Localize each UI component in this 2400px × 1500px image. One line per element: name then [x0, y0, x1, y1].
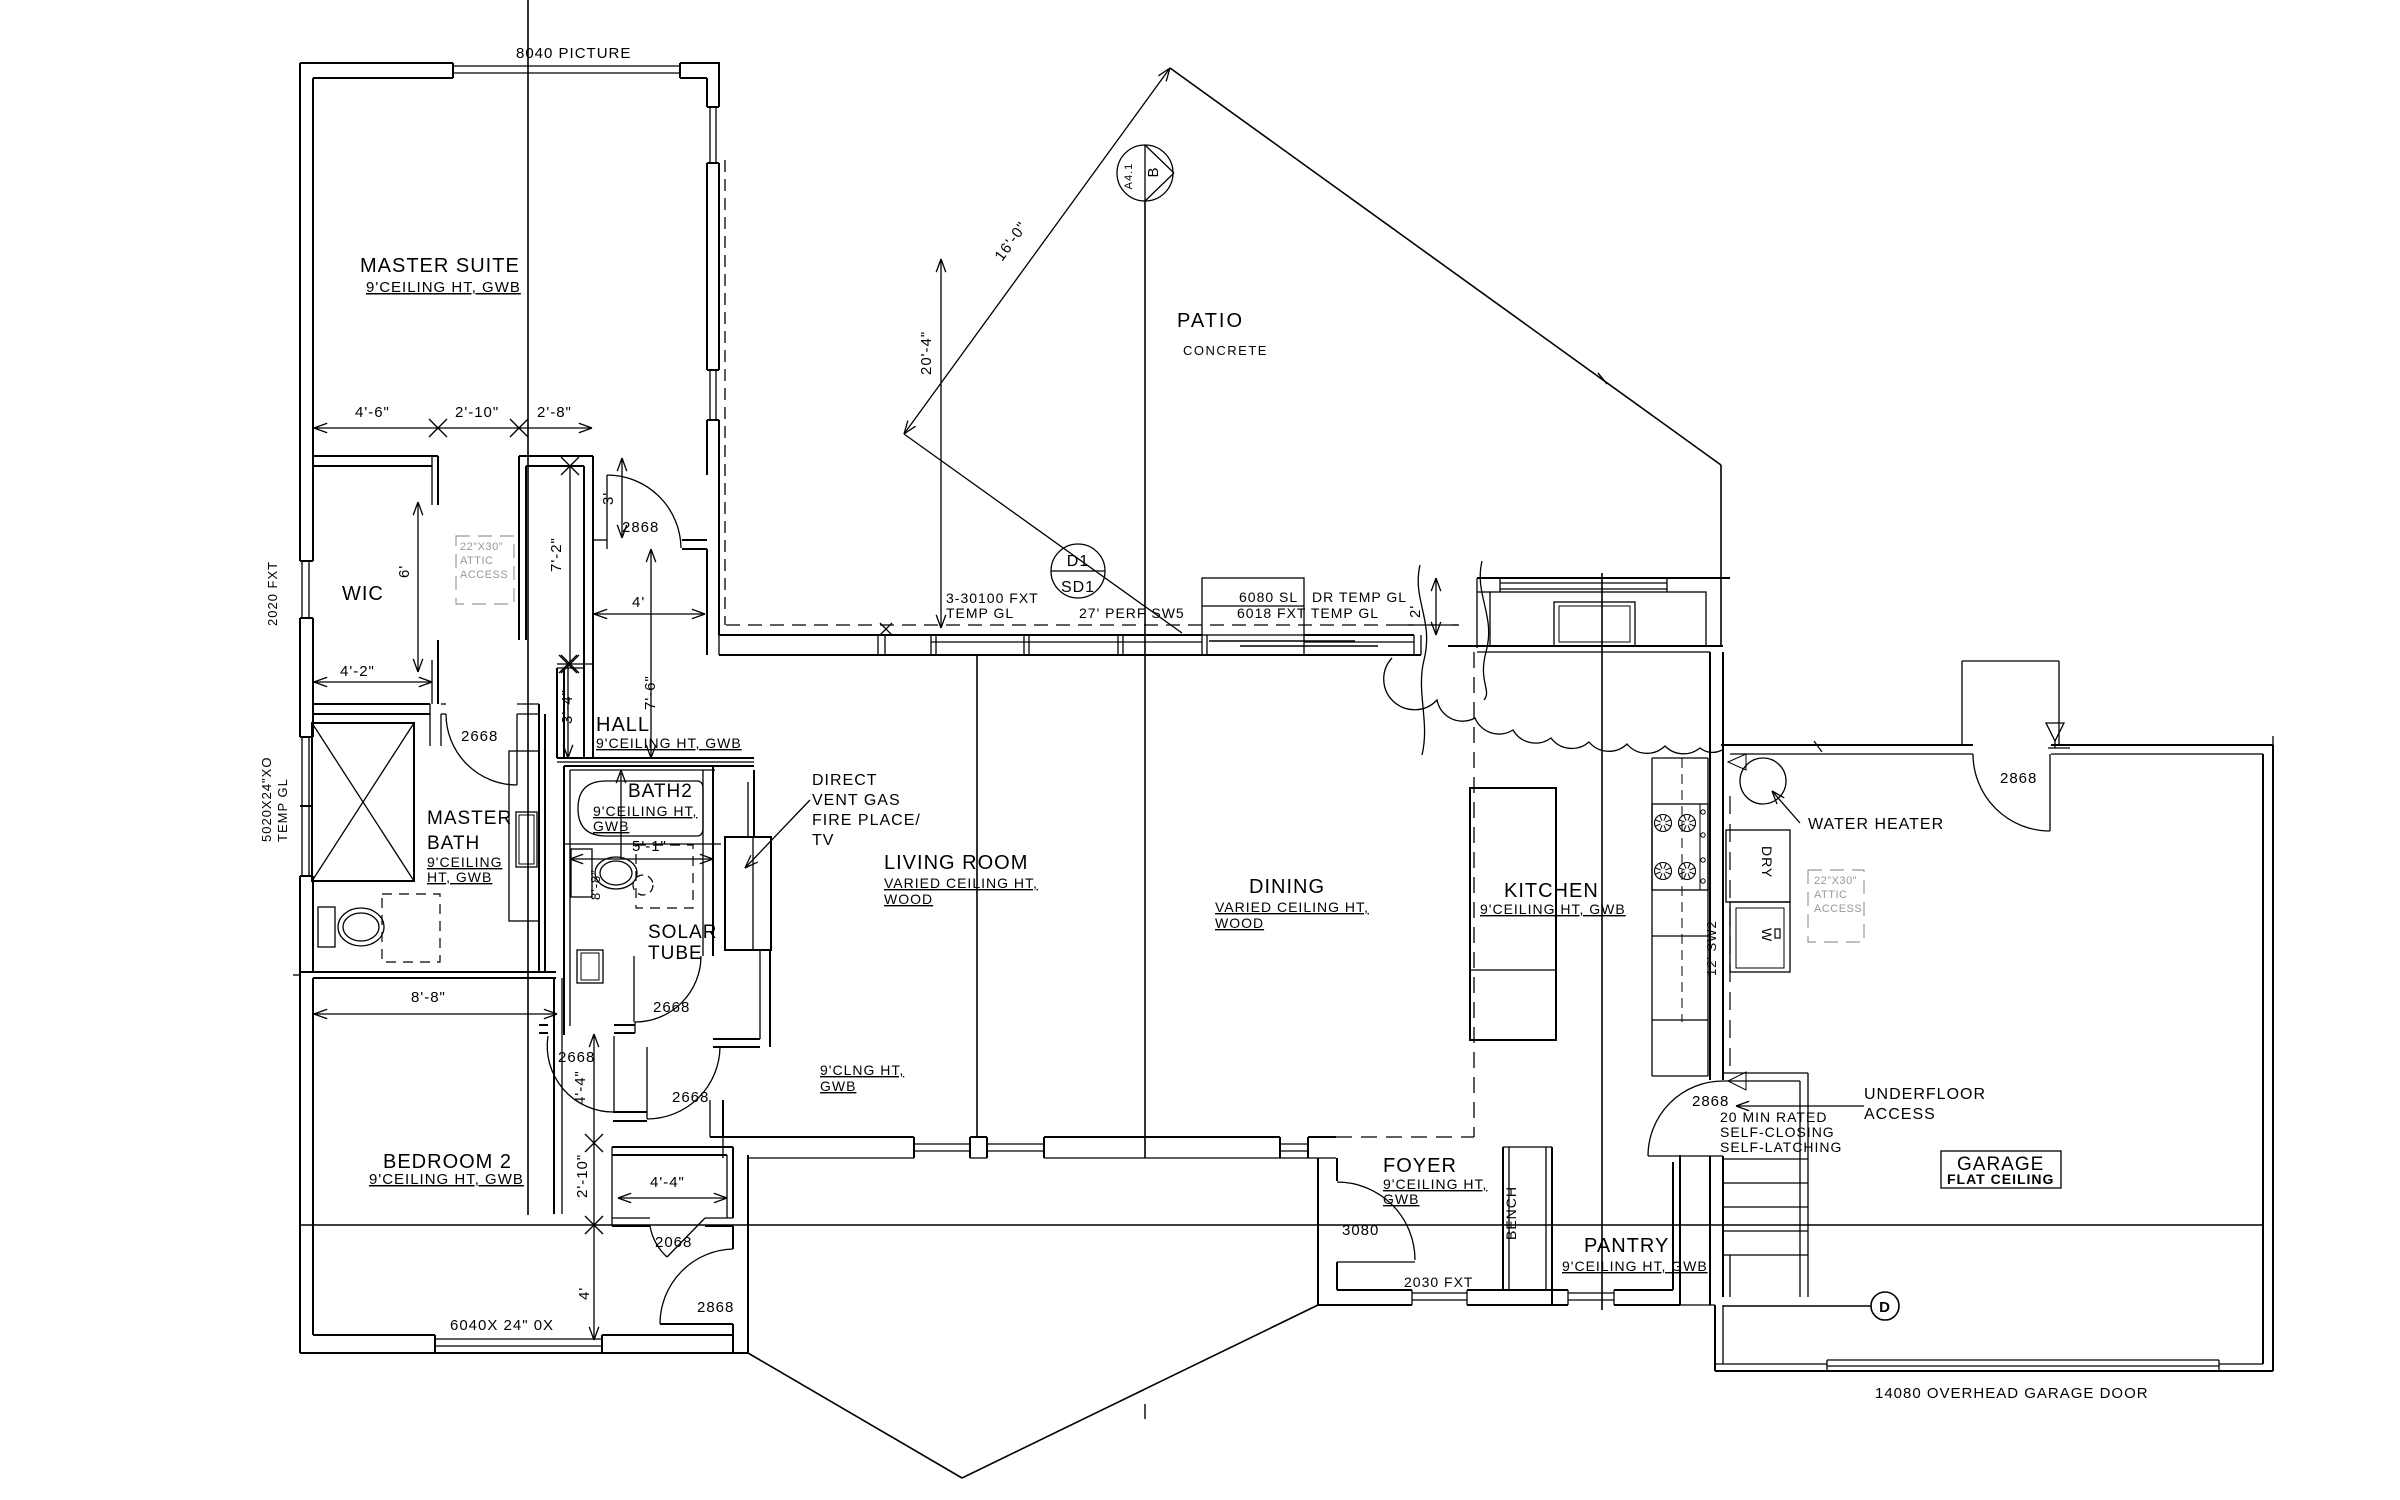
svg-text:4'-4": 4'-4" — [572, 1070, 589, 1105]
svg-text:27' PERF SW5: 27' PERF SW5 — [1079, 605, 1185, 621]
svg-text:GWB: GWB — [820, 1078, 856, 1094]
svg-text:ACCESS: ACCESS — [1814, 903, 1862, 915]
svg-text:GWB: GWB — [1383, 1191, 1419, 1207]
svg-text:9'CEILING: 9'CEILING — [427, 854, 502, 870]
svg-text:WOOD: WOOD — [1215, 915, 1264, 931]
svg-text:ATTIC: ATTIC — [460, 555, 493, 567]
svg-text:WOOD: WOOD — [884, 891, 933, 907]
svg-text:6': 6' — [396, 565, 413, 578]
svg-text:FOYER: FOYER — [1383, 1155, 1457, 1177]
svg-text:2068: 2068 — [655, 1234, 692, 1251]
svg-text:WATER HEATER: WATER HEATER — [1808, 816, 1944, 833]
svg-text:4': 4' — [632, 594, 645, 611]
svg-text:GWB: GWB — [593, 818, 629, 834]
svg-text:2668: 2668 — [672, 1089, 709, 1106]
svg-text:8'-8": 8'-8" — [588, 869, 603, 900]
svg-text:9'CEILING HT, GWB: 9'CEILING HT, GWB — [366, 279, 521, 296]
svg-text:DRY: DRY — [1759, 846, 1775, 878]
svg-text:SELF-LATCHING: SELF-LATCHING — [1720, 1139, 1842, 1155]
svg-text:9'CEILING HT, GWB: 9'CEILING HT, GWB — [596, 735, 742, 751]
svg-text:9'CLNG HT,: 9'CLNG HT, — [820, 1062, 904, 1078]
svg-text:VENT GAS: VENT GAS — [812, 792, 901, 809]
svg-text:W: W — [1759, 928, 1775, 942]
svg-text:D: D — [1879, 1299, 1891, 1316]
svg-text:A4.1: A4.1 — [1123, 163, 1135, 190]
svg-text:BATH: BATH — [427, 833, 480, 854]
svg-text:2868: 2868 — [1692, 1093, 1729, 1110]
svg-text:9'CEILING HT,: 9'CEILING HT, — [593, 803, 697, 819]
svg-text:2868: 2868 — [697, 1299, 734, 1316]
svg-text:4'-2": 4'-2" — [340, 663, 375, 680]
svg-text:4'-6": 4'-6" — [355, 404, 390, 421]
svg-text:9'CEILING HT, GWB: 9'CEILING HT, GWB — [1480, 901, 1626, 917]
svg-text:DIRECT: DIRECT — [812, 772, 878, 789]
svg-text:22"X30": 22"X30" — [1814, 875, 1857, 887]
svg-text:DR TEMP GL: DR TEMP GL — [1312, 589, 1407, 605]
svg-text:8040 PICTURE: 8040 PICTURE — [516, 45, 631, 62]
svg-text:2'-10": 2'-10" — [574, 1154, 591, 1198]
svg-text:TEMP GL: TEMP GL — [275, 778, 290, 842]
svg-text:SD1: SD1 — [1061, 579, 1095, 596]
svg-text:6018 FXT TEMP GL: 6018 FXT TEMP GL — [1237, 605, 1379, 621]
svg-text:SELF-CLOSING: SELF-CLOSING — [1720, 1124, 1835, 1140]
svg-text:BATH2: BATH2 — [628, 781, 693, 802]
svg-text:FIRE PLACE/: FIRE PLACE/ — [812, 812, 921, 829]
svg-text:BENCH: BENCH — [1503, 1186, 1519, 1240]
svg-text:TEMP GL: TEMP GL — [946, 605, 1014, 621]
svg-text:KITCHEN: KITCHEN — [1504, 880, 1599, 902]
svg-text:HT, GWB: HT, GWB — [427, 869, 492, 885]
svg-text:2868: 2868 — [2000, 770, 2037, 787]
svg-text:HALL: HALL — [596, 714, 650, 736]
svg-text:VARIED CEILING HT,: VARIED CEILING HT, — [884, 875, 1038, 891]
svg-text:22"X30": 22"X30" — [460, 541, 503, 553]
svg-text:B: B — [1145, 166, 1162, 177]
svg-text:SOLAR: SOLAR — [648, 922, 717, 943]
svg-text:7'-6": 7'-6" — [642, 675, 659, 710]
svg-text:MASTER: MASTER — [427, 808, 512, 829]
svg-text:VARIED CEILING HT,: VARIED CEILING HT, — [1215, 899, 1369, 915]
svg-text:5'-1": 5'-1" — [632, 838, 667, 855]
svg-text:12' SW2: 12' SW2 — [1704, 920, 1719, 976]
svg-text:14080 OVERHEAD GARAGE DOOR: 14080 OVERHEAD GARAGE DOOR — [1875, 1385, 2149, 1402]
svg-text:4': 4' — [576, 1287, 593, 1300]
svg-text:20 MIN RATED: 20 MIN RATED — [1720, 1109, 1827, 1125]
svg-text:9'CEILING HT, GWB: 9'CEILING HT, GWB — [369, 1171, 524, 1188]
svg-text:4'-4": 4'-4" — [650, 1174, 685, 1191]
svg-text:MASTER SUITE: MASTER SUITE — [360, 255, 520, 277]
svg-text:2': 2' — [1407, 605, 1424, 618]
svg-text:LIVING ROOM: LIVING ROOM — [884, 852, 1028, 874]
svg-text:2'-8": 2'-8" — [537, 404, 572, 421]
svg-text:3-30100 FXT: 3-30100 FXT — [946, 590, 1039, 606]
svg-text:3'-4": 3'-4" — [559, 689, 576, 724]
svg-text:20'-4": 20'-4" — [918, 331, 935, 375]
svg-text:2668: 2668 — [461, 728, 498, 745]
svg-text:TUBE: TUBE — [648, 943, 703, 964]
svg-text:ATTIC: ATTIC — [1814, 889, 1847, 901]
svg-text:9'CEILING HT, GWB: 9'CEILING HT, GWB — [1562, 1258, 1708, 1274]
svg-text:3080: 3080 — [1342, 1222, 1379, 1239]
svg-text:9'CEILING HT,: 9'CEILING HT, — [1383, 1176, 1487, 1192]
svg-text:PATIO: PATIO — [1177, 310, 1244, 332]
svg-text:2'-10": 2'-10" — [455, 404, 499, 421]
svg-text:6080 SL: 6080 SL — [1239, 589, 1298, 605]
svg-text:2030 FXT: 2030 FXT — [1404, 1274, 1473, 1290]
svg-text:FLAT CEILING: FLAT CEILING — [1947, 1171, 2054, 1187]
svg-text:DINING: DINING — [1249, 876, 1325, 898]
svg-text:UNDERFLOOR: UNDERFLOOR — [1864, 1086, 1986, 1103]
svg-text:5020X24"XO: 5020X24"XO — [259, 757, 274, 842]
svg-text:PANTRY: PANTRY — [1584, 1235, 1669, 1257]
svg-text:TV: TV — [812, 832, 834, 849]
svg-text:ACCESS: ACCESS — [1864, 1106, 1936, 1123]
svg-text:2668: 2668 — [558, 1049, 595, 1066]
svg-text:WIC: WIC — [342, 583, 384, 605]
svg-text:3': 3' — [600, 492, 617, 505]
svg-text:7'-2": 7'-2" — [548, 537, 565, 572]
svg-text:CONCRETE: CONCRETE — [1183, 343, 1268, 358]
svg-text:6040X 24" 0X: 6040X 24" 0X — [450, 1317, 554, 1334]
svg-text:ACCESS: ACCESS — [460, 569, 508, 581]
svg-text:2020 FXT: 2020 FXT — [265, 561, 280, 626]
svg-text:8'-8": 8'-8" — [411, 989, 446, 1006]
svg-text:2868: 2868 — [622, 519, 659, 536]
svg-text:D1: D1 — [1067, 553, 1089, 570]
svg-text:BEDROOM 2: BEDROOM 2 — [383, 1151, 512, 1173]
svg-text:2668: 2668 — [653, 999, 690, 1016]
